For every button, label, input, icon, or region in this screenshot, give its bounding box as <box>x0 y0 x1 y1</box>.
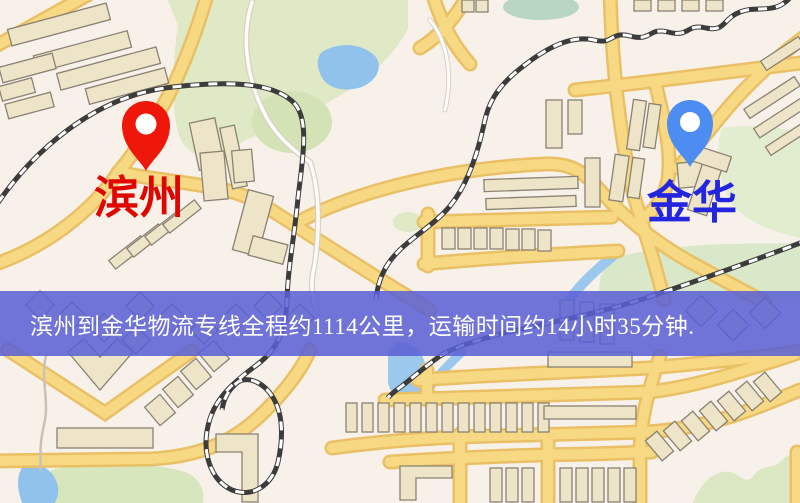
destination-label: 金华 <box>647 181 737 226</box>
route-banner: 滨州到金华物流专线全程约1114公里，运输时间约14小时35分钟. <box>0 291 800 356</box>
route-banner-text: 滨州到金华物流专线全程约1114公里，运输时间约14小时35分钟. <box>30 307 695 341</box>
origin-label: 滨州 <box>94 176 184 221</box>
map-canvas[interactable] <box>0 0 800 503</box>
map-screenshot: 滨州 金华 滨州到金华物流专线全程约1114公里，运输时间约14小时35分钟. <box>0 0 800 503</box>
